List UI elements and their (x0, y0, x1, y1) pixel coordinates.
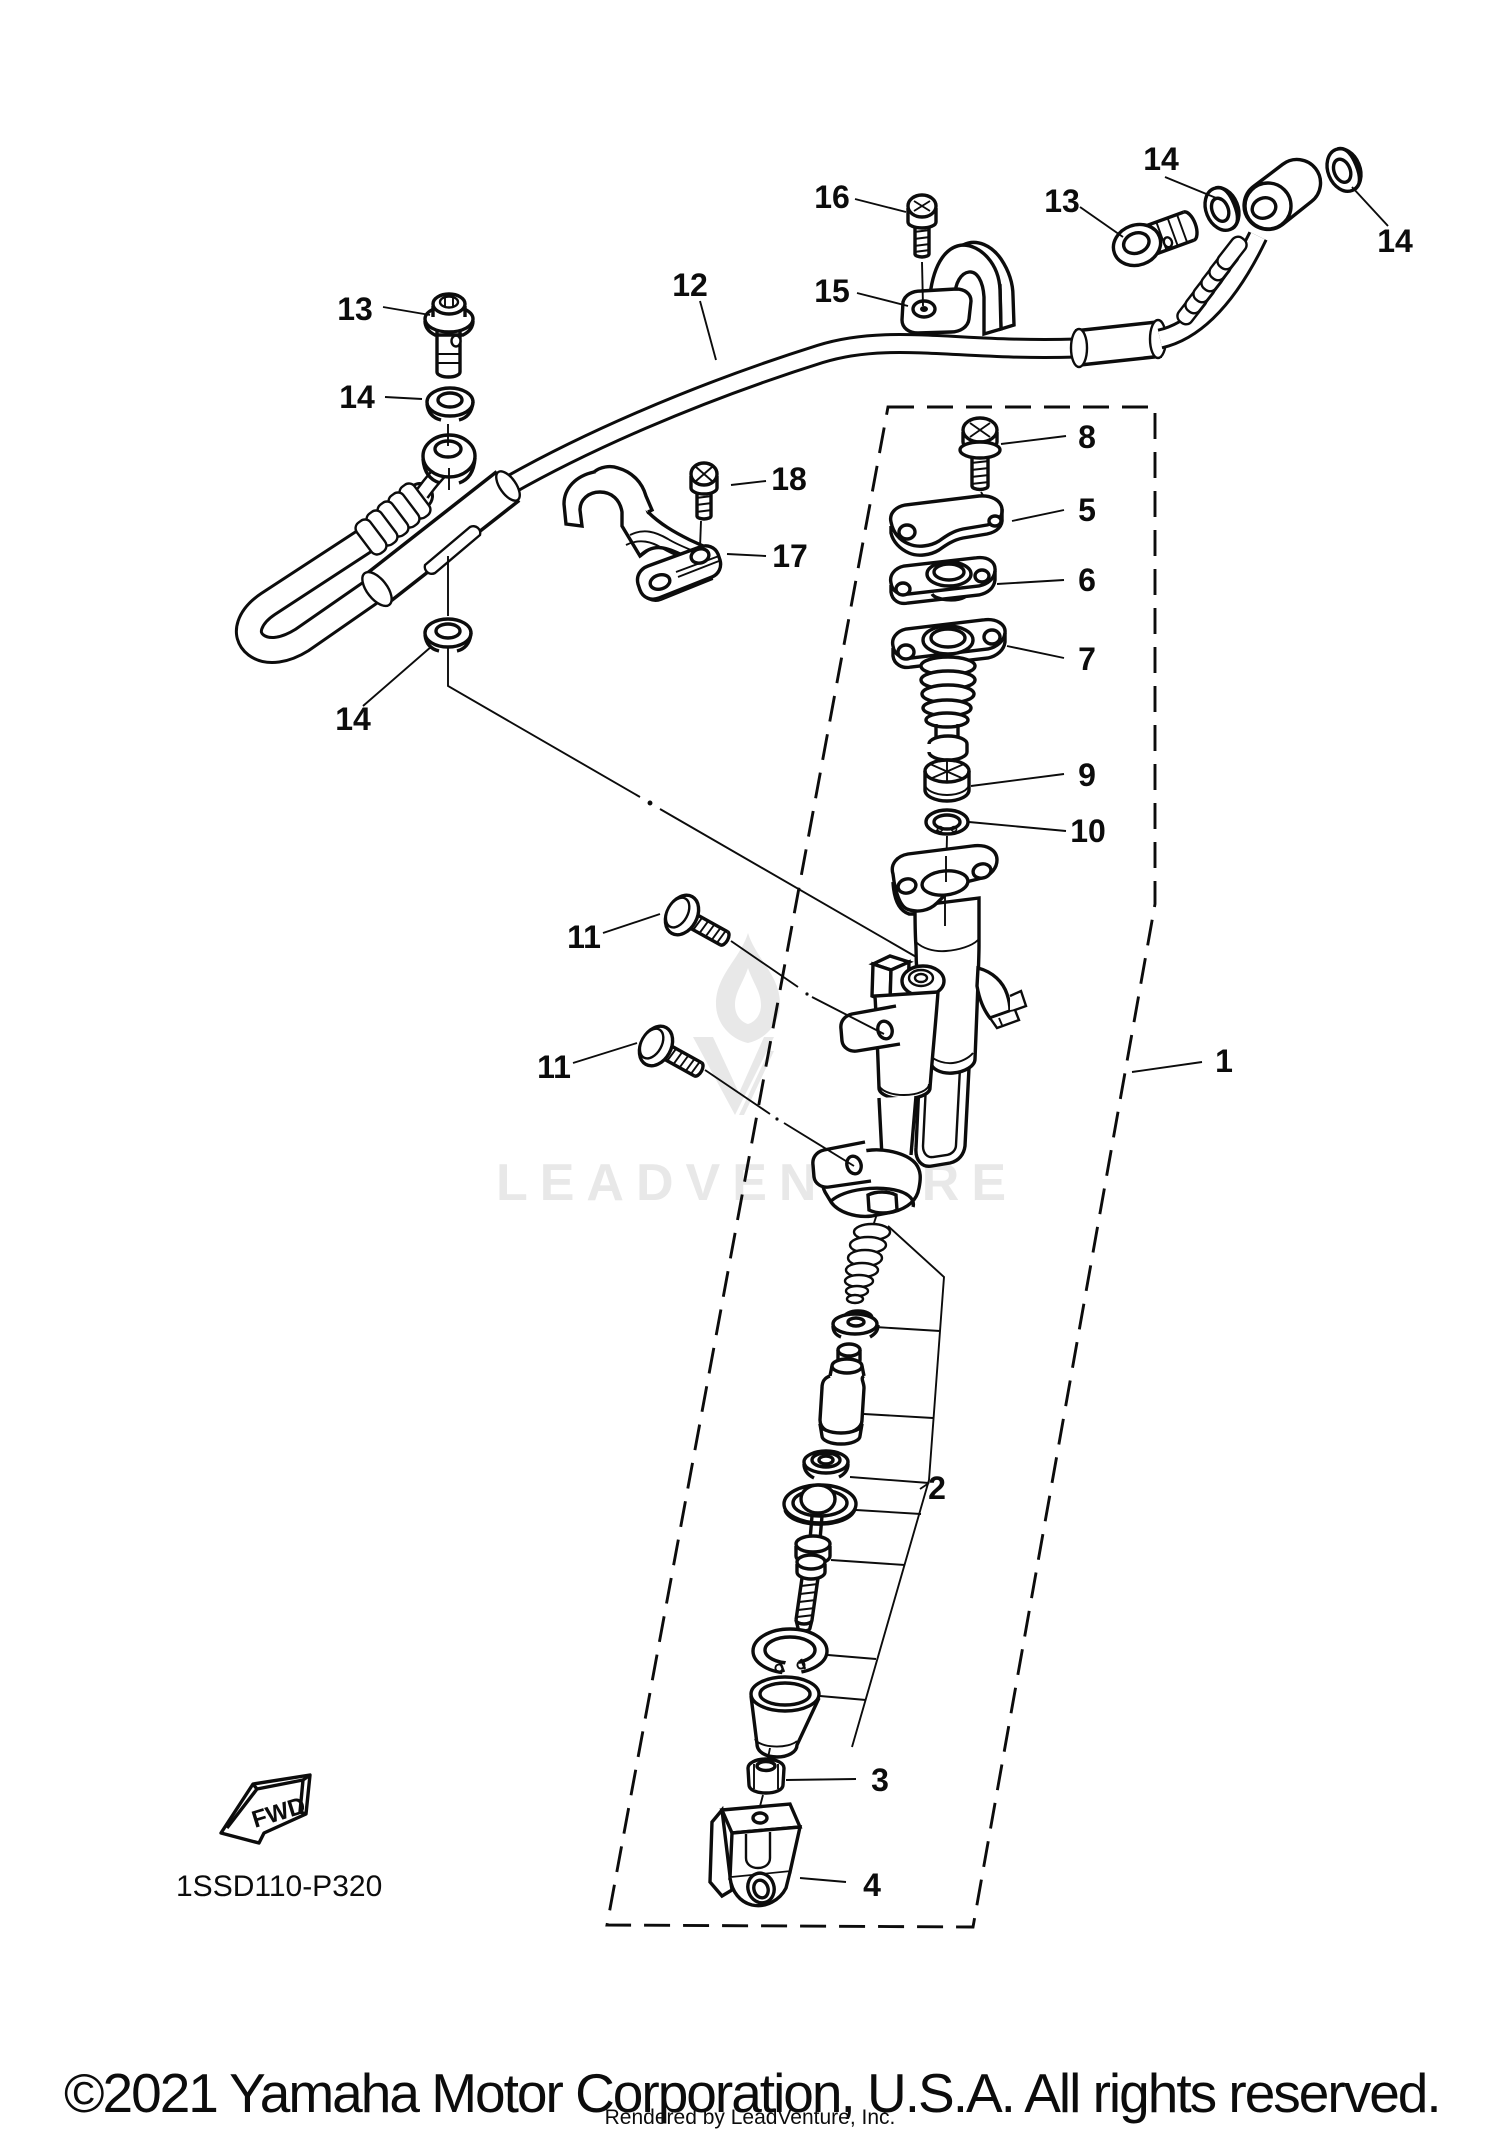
svg-text:14: 14 (1143, 141, 1179, 177)
svg-text:4: 4 (863, 1867, 881, 1903)
svg-text:15: 15 (814, 273, 850, 309)
svg-text:9: 9 (1078, 757, 1096, 793)
svg-text:8: 8 (1078, 419, 1096, 455)
svg-text:13: 13 (1044, 183, 1080, 219)
svg-text:1: 1 (1215, 1043, 1233, 1079)
svg-text:14: 14 (339, 379, 375, 415)
svg-text:11: 11 (567, 919, 601, 955)
svg-text:17: 17 (772, 538, 808, 574)
svg-text:3: 3 (871, 1762, 889, 1798)
svg-text:10: 10 (1070, 813, 1106, 849)
svg-text:14: 14 (1377, 223, 1413, 259)
svg-text:16: 16 (814, 179, 850, 215)
svg-text:LEADVENTURE: LEADVENTURE (496, 1154, 1018, 1212)
svg-text:11: 11 (537, 1049, 571, 1085)
svg-text:1SSD110-P320: 1SSD110-P320 (176, 1870, 382, 1903)
svg-text:Rendered by LeadVenture, Inc.: Rendered by LeadVenture, Inc. (605, 2106, 896, 2129)
svg-text:2: 2 (928, 1470, 946, 1506)
svg-text:6: 6 (1078, 562, 1096, 598)
svg-text:7: 7 (1078, 641, 1096, 677)
svg-text:14: 14 (335, 701, 371, 737)
svg-text:13: 13 (337, 291, 373, 327)
svg-text:12: 12 (672, 267, 708, 303)
svg-text:18: 18 (771, 461, 807, 497)
svg-text:5: 5 (1078, 492, 1096, 528)
